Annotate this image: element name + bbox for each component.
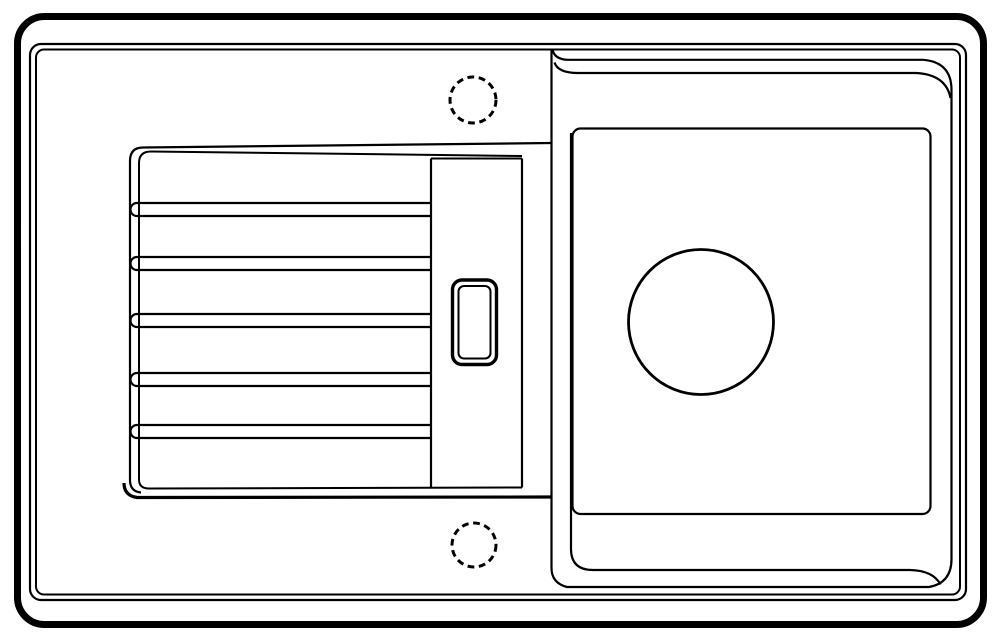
faucet-hole-top xyxy=(450,77,496,123)
bowl-rim-and-divider xyxy=(552,50,952,588)
drainboard-top-inner-edge xyxy=(151,152,522,157)
bowl-wall-top-edge xyxy=(555,63,951,99)
drainboard-top-edge xyxy=(143,143,552,148)
sink-outer-edge xyxy=(18,17,984,625)
bowl-floor-edge xyxy=(573,129,931,515)
drainboard-outer-contour xyxy=(130,148,143,493)
drainboard-bottom-edge xyxy=(124,483,552,498)
drainboard-groove-5 xyxy=(131,425,432,438)
popup-control-inner xyxy=(459,286,491,359)
drainboard-groove-2 xyxy=(131,257,432,270)
drainboard-bottom-inner-edge xyxy=(148,488,522,489)
drainboard-groove-4 xyxy=(131,373,432,386)
drainboard-groove-3 xyxy=(131,314,432,327)
drain-hole xyxy=(629,250,774,395)
drainboard-groove-1 xyxy=(131,203,432,216)
bowl-wall-bottom-edge xyxy=(571,133,941,585)
sink-top-view-drawing xyxy=(0,0,1000,634)
faucet-hole-bottom xyxy=(452,523,496,567)
drawing-stage xyxy=(0,0,1000,634)
